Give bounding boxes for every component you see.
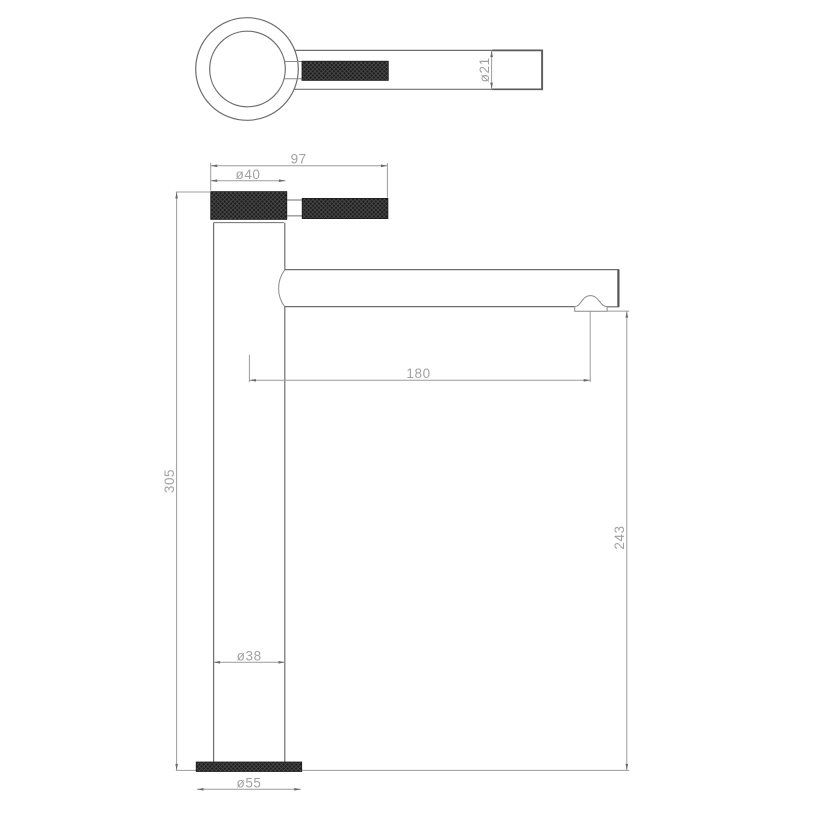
- svg-text:97: 97: [291, 152, 307, 167]
- svg-text:180: 180: [406, 366, 430, 381]
- svg-text:305: 305: [162, 469, 177, 493]
- svg-text:ø55: ø55: [236, 775, 261, 790]
- svg-text:ø21: ø21: [477, 57, 492, 82]
- svg-text:ø40: ø40: [235, 167, 260, 182]
- svg-text:243: 243: [612, 525, 627, 549]
- svg-text:ø38: ø38: [237, 648, 262, 663]
